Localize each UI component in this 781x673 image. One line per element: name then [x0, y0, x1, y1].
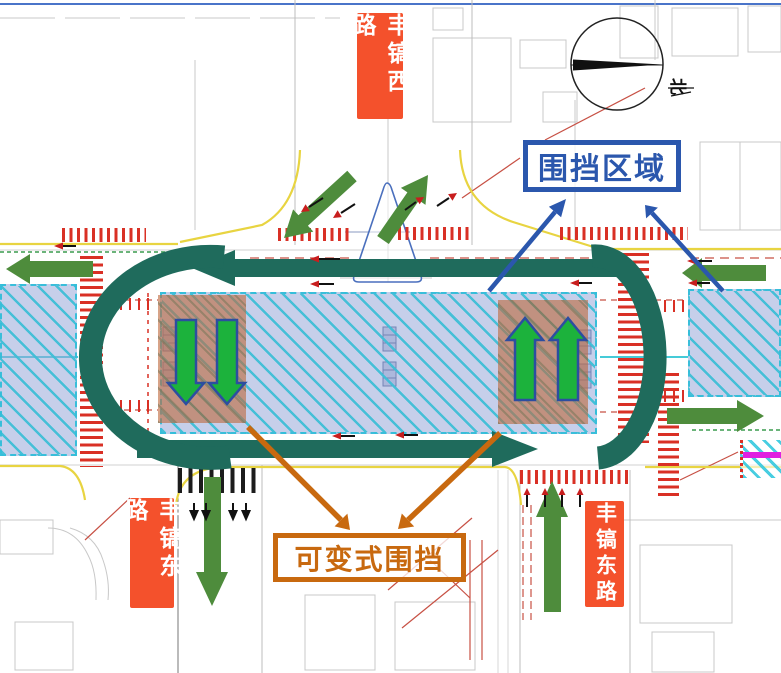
- road-label-southwest-text: 丰镐东路: [118, 498, 186, 608]
- lane-up-arrow-1: [507, 318, 543, 400]
- variable-enclosure-callout: 可变式围挡: [273, 533, 466, 582]
- road-label-north-text: 丰镐西路: [346, 13, 414, 119]
- north-exit-arrow: [377, 175, 428, 244]
- east-exit-arrow: [667, 400, 764, 432]
- right-uturn-curve: [592, 256, 655, 458]
- traffic-plan-canvas: 北: [0, 0, 781, 673]
- uturn-flow: [137, 250, 630, 467]
- enclosure-area-callout: 围挡区域: [523, 140, 681, 192]
- variable-enclosure-text: 可变式围挡: [294, 538, 444, 578]
- southeast-entry-arrow: [536, 481, 568, 612]
- westbound-through-arrow: [192, 250, 630, 286]
- lane-marking-arrows: [54, 193, 712, 519]
- left-uturn-curve: [90, 256, 230, 458]
- road-label-north: 丰镐西路: [357, 13, 403, 119]
- lane-down-arrow-2: [209, 320, 245, 404]
- road-label-southeast: 丰镐东路: [585, 501, 624, 607]
- lane-control-arrows: [168, 318, 586, 404]
- road-label-southeast-text: 丰镐东路: [590, 502, 620, 606]
- lane-down-arrow-1: [168, 320, 204, 404]
- enclosure-area-text: 围挡区域: [538, 144, 666, 188]
- lane-up-arrow-2: [550, 318, 586, 400]
- road-label-southwest: 丰镐东路: [130, 498, 174, 608]
- west-exit-arrow: [6, 254, 93, 284]
- north-entry-arrow: [284, 171, 357, 238]
- southwest-exit-arrow: [196, 477, 228, 606]
